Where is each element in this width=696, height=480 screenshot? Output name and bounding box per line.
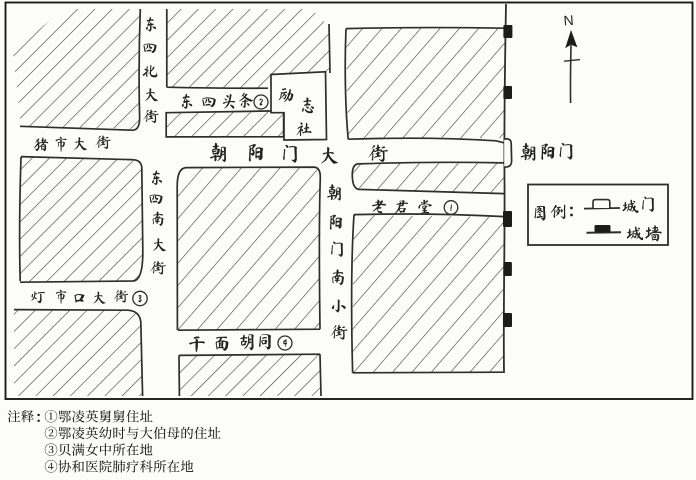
svg-text:N: N: [563, 12, 574, 29]
